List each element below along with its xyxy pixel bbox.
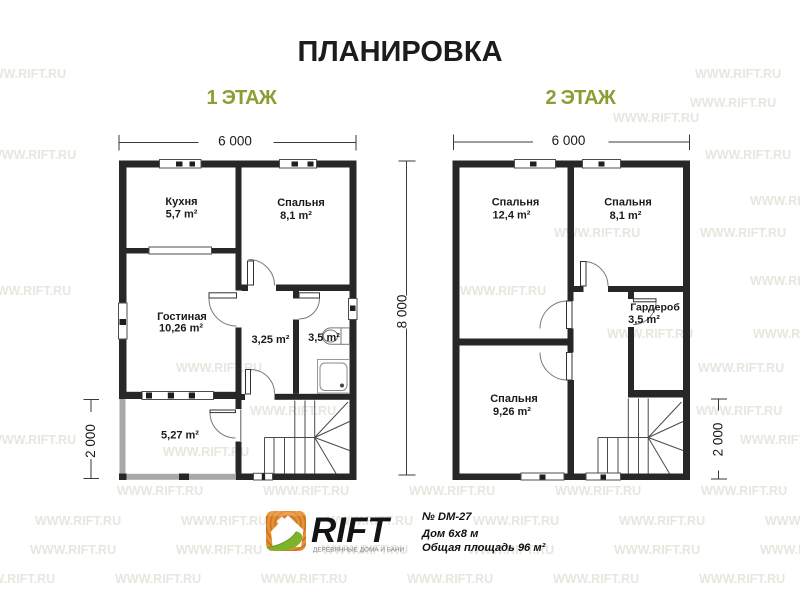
- svg-text:8,1 m²: 8,1 m²: [280, 210, 312, 222]
- svg-text:Спальня: Спальня: [277, 197, 325, 209]
- svg-text:№ DM-27: № DM-27: [422, 511, 472, 523]
- svg-text:6 000: 6 000: [552, 133, 586, 148]
- svg-text:Гостиная: Гостиная: [157, 311, 207, 323]
- svg-text:ДЕРЕВЯННЫЕ ДОМА И БАНИ: ДЕРЕВЯННЫЕ ДОМА И БАНИ: [313, 547, 405, 554]
- svg-text:5,7 m²: 5,7 m²: [166, 209, 198, 221]
- svg-text:9,26 m²: 9,26 m²: [493, 406, 531, 418]
- svg-text:RIFT: RIFT: [311, 511, 391, 550]
- svg-text:8 000: 8 000: [395, 295, 410, 329]
- svg-text:Спальня: Спальня: [490, 393, 538, 405]
- svg-text:Общая площадь 96 м²: Общая площадь 96 м²: [422, 542, 546, 554]
- svg-text:Спальня: Спальня: [492, 197, 540, 209]
- svg-text:3,5 m²: 3,5 m²: [628, 314, 660, 326]
- svg-text:Спальня: Спальня: [604, 197, 652, 209]
- svg-text:3,5 m²: 3,5 m²: [308, 332, 340, 344]
- svg-text:2 000: 2 000: [83, 424, 98, 458]
- svg-text:Дом 6х8 м: Дом 6х8 м: [421, 528, 479, 540]
- svg-text:10,26 m²: 10,26 m²: [159, 323, 203, 335]
- svg-text:Гардероб: Гардероб: [630, 302, 680, 314]
- svg-text:Кухня: Кухня: [165, 196, 197, 208]
- svg-text:3,25 m²: 3,25 m²: [252, 334, 290, 346]
- svg-text:6 000: 6 000: [218, 134, 252, 149]
- svg-text:5,27 m²: 5,27 m²: [161, 430, 199, 442]
- svg-text:2 000: 2 000: [711, 423, 726, 457]
- svg-text:12,4 m²: 12,4 m²: [493, 210, 531, 222]
- svg-text:8,1 m²: 8,1 m²: [610, 210, 642, 222]
